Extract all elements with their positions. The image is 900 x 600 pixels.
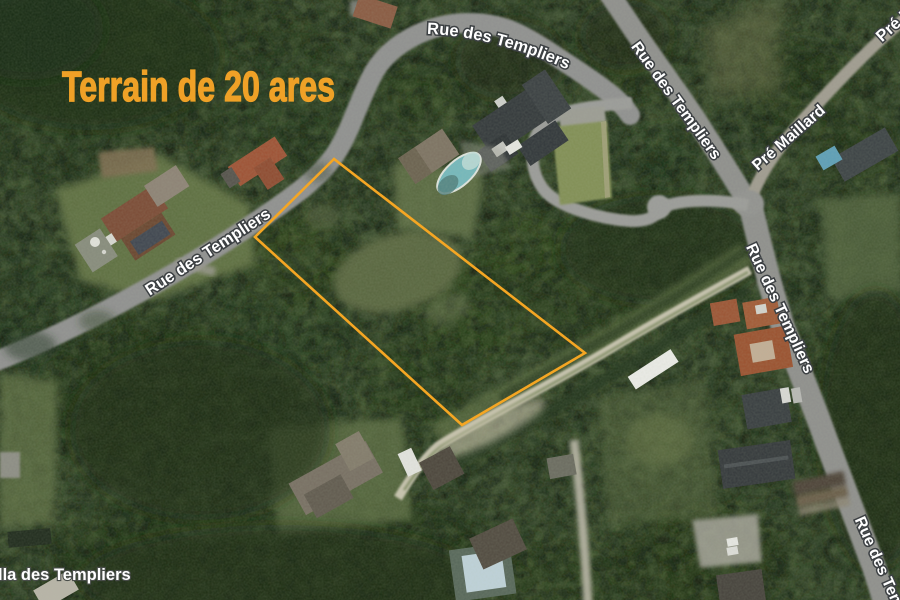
svg-text:lla des Templiers: lla des Templiers — [0, 566, 131, 584]
svg-text:Terrain de 20 ares: Terrain de 20 ares — [62, 63, 335, 111]
